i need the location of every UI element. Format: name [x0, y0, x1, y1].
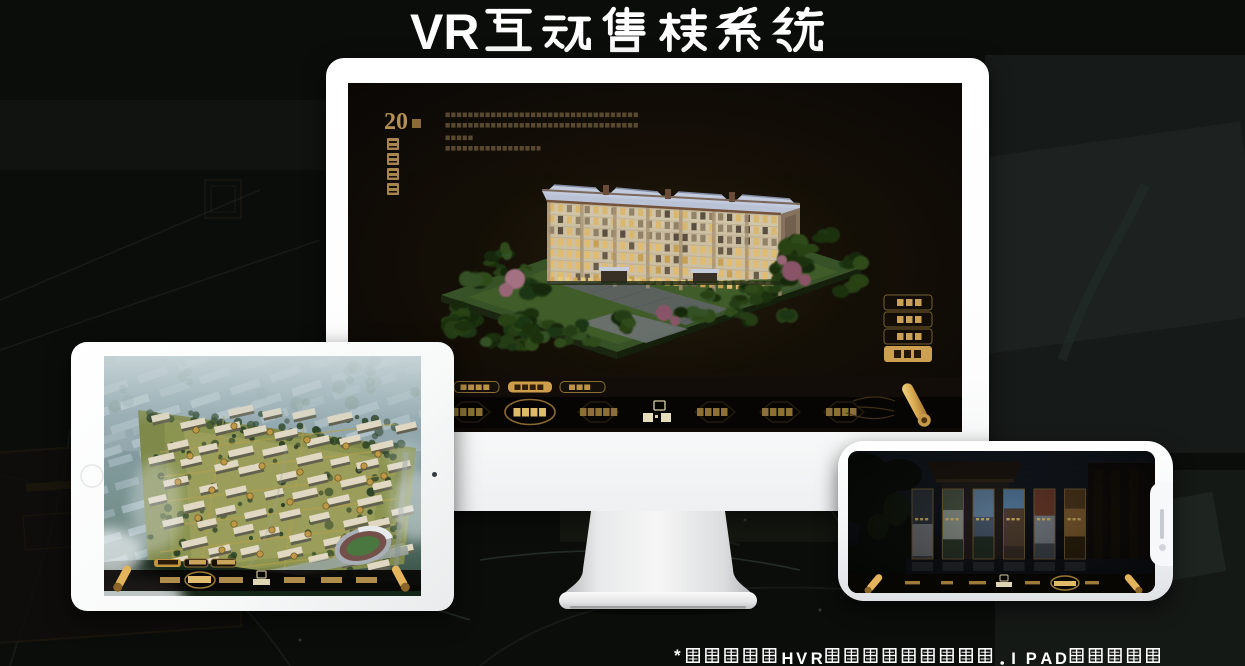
svg-text:20: 20	[384, 109, 408, 135]
svg-text:I: I	[1011, 650, 1018, 666]
svg-text:H: H	[782, 650, 796, 666]
svg-text:A: A	[1040, 650, 1054, 666]
svg-text:V: V	[796, 650, 809, 666]
svg-text:VR: VR	[410, 4, 479, 56]
svg-text:*: *	[674, 646, 681, 665]
svg-text:D: D	[1055, 650, 1069, 666]
svg-text:P: P	[1026, 650, 1039, 666]
svg-text:R: R	[811, 650, 825, 666]
